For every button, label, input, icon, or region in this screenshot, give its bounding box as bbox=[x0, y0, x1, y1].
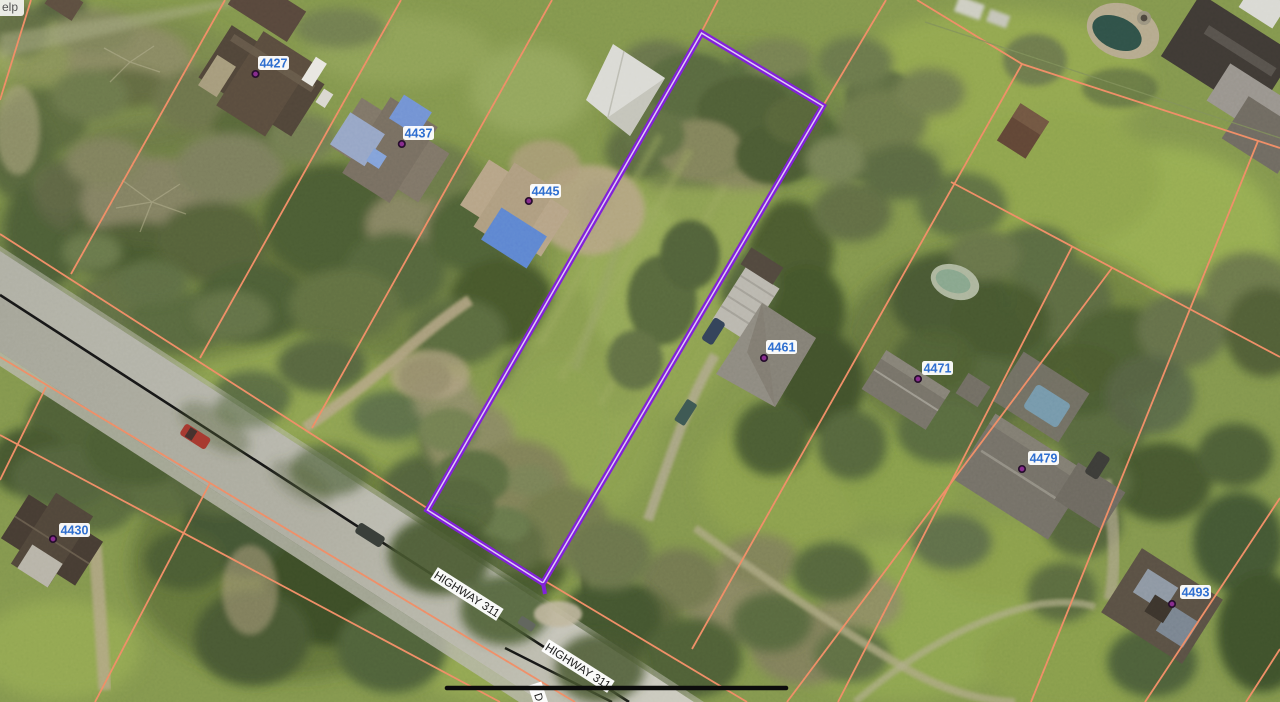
svg-text:4493: 4493 bbox=[1182, 586, 1210, 600]
svg-text:elp: elp bbox=[2, 0, 18, 14]
svg-text:4427: 4427 bbox=[260, 57, 288, 71]
svg-text:4445: 4445 bbox=[532, 185, 560, 199]
svg-text:4471: 4471 bbox=[924, 362, 952, 376]
svg-text:4430: 4430 bbox=[61, 524, 89, 538]
svg-text:4461: 4461 bbox=[768, 341, 796, 355]
svg-text:4437: 4437 bbox=[405, 127, 433, 141]
svg-text:4479: 4479 bbox=[1030, 452, 1058, 466]
